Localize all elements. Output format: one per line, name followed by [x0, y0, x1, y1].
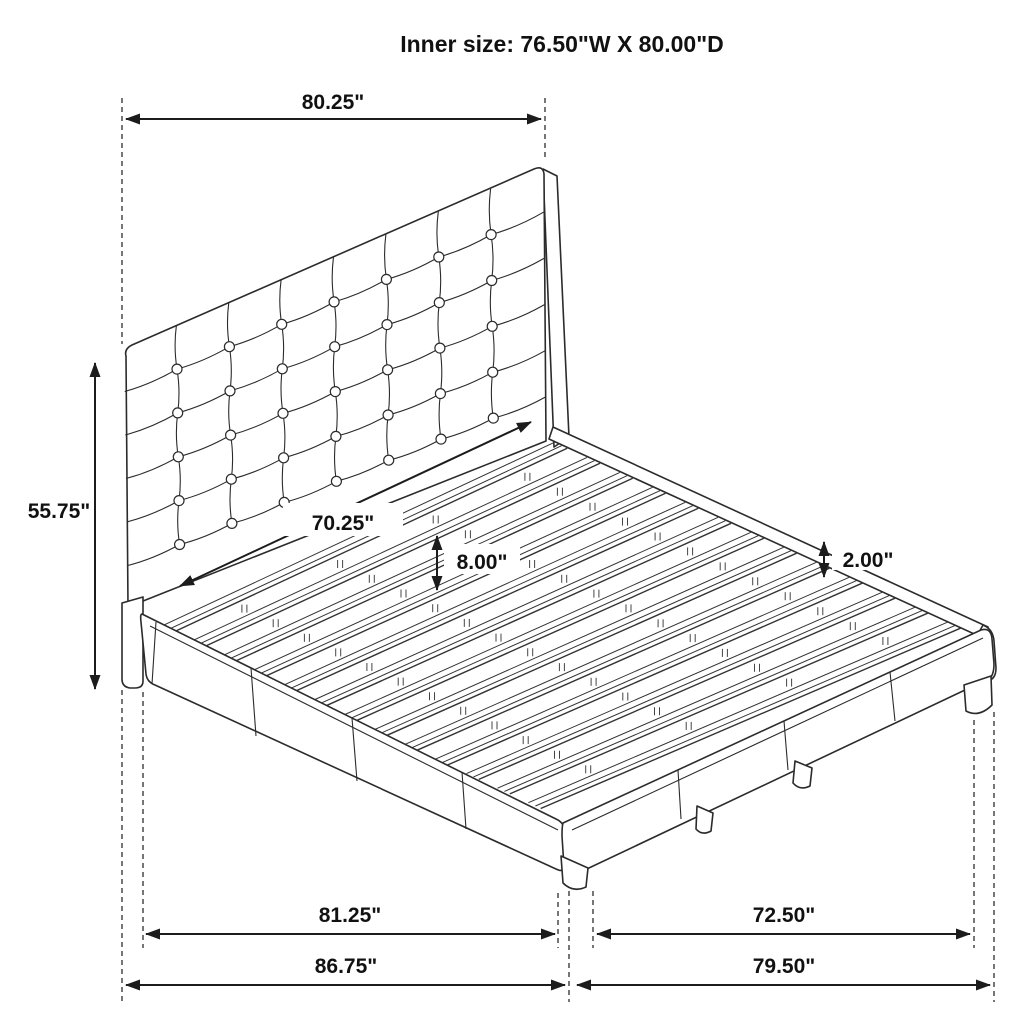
dim-headboard-width: 80.25" — [126, 91, 541, 119]
tuft-button — [434, 252, 444, 262]
dim-label-side-rail-length: 81.25" — [319, 904, 382, 927]
dim-overall-width: 79.50" — [577, 955, 990, 985]
diagram-title: Inner size: 76.50"W X 80.00"D — [400, 31, 724, 57]
tuft-button — [330, 387, 340, 397]
tuft-button — [277, 319, 287, 329]
tuft-button — [279, 453, 289, 463]
tuft-button — [277, 364, 287, 374]
tuft-button — [227, 518, 237, 528]
tuft-button — [331, 476, 341, 486]
dim-label-slat-spacing: 8.00" — [457, 551, 508, 574]
tuft-button — [436, 434, 446, 444]
dim-headboard-height: 55.75" — [28, 363, 95, 689]
bed-dimension-diagram: 80.25" 55.75" 70.25" 8.00" 2.00" 8 — [0, 0, 1024, 1024]
tuft-button — [488, 413, 498, 423]
tuft-button — [329, 297, 339, 307]
tuft-button — [435, 389, 445, 399]
near-side-rail-face — [141, 614, 566, 870]
tuft-button — [175, 540, 185, 550]
tuft-button — [381, 274, 391, 284]
tuft-button — [435, 343, 445, 353]
dim-side-rail-length: 81.25" — [146, 904, 555, 934]
dim-label-headboard-width: 80.25" — [302, 91, 365, 114]
near-side-rail — [141, 614, 566, 870]
tuft-button — [487, 321, 497, 331]
dim-label-overall-depth: 86.75" — [315, 955, 378, 978]
tuft-button — [173, 408, 183, 418]
tuft-button — [434, 298, 444, 308]
diagram-svg: 80.25" 55.75" 70.25" 8.00" 2.00" 8 — [0, 0, 1024, 1024]
tuft-button — [225, 386, 235, 396]
tuft-button — [382, 320, 392, 330]
tuft-button — [278, 408, 288, 418]
tuft-button — [488, 367, 498, 377]
tuft-button — [172, 364, 182, 374]
tuft-button — [383, 365, 393, 375]
bed-drawing — [122, 168, 996, 889]
dim-slat-spacing: 8.00" — [437, 536, 520, 590]
dim-label-headboard-height: 55.75" — [28, 500, 91, 523]
dim-overall-depth: 86.75" — [126, 955, 565, 985]
tuft-button — [224, 342, 234, 352]
far-side-rail — [549, 427, 988, 638]
dim-label-footboard-inner: 72.50" — [753, 904, 816, 927]
headboard-side-face — [543, 169, 569, 447]
slat-line — [355, 538, 764, 721]
dim-label-inner-headboard-width: 70.25" — [312, 512, 375, 535]
tuft-button — [383, 410, 393, 420]
dim-rail-lip: 2.00" — [824, 542, 904, 577]
slat-line — [417, 568, 830, 750]
slat-line — [386, 553, 797, 736]
tuft-button — [173, 452, 183, 462]
dim-label-rail-lip: 2.00" — [843, 549, 894, 572]
tuft-button — [174, 496, 184, 506]
dim-footboard-inner: 72.50" — [597, 904, 970, 934]
tuft-button — [384, 455, 394, 465]
dim-label-overall-width: 79.50" — [753, 955, 816, 978]
tuft-button — [226, 474, 236, 484]
headboard-left-leg — [122, 597, 143, 688]
tuft-button — [330, 342, 340, 352]
tuft-button — [226, 430, 236, 440]
footboard-foot-2 — [793, 761, 812, 788]
tuft-button — [487, 276, 497, 286]
tuft-button — [331, 431, 341, 441]
tuft-button — [486, 230, 496, 240]
